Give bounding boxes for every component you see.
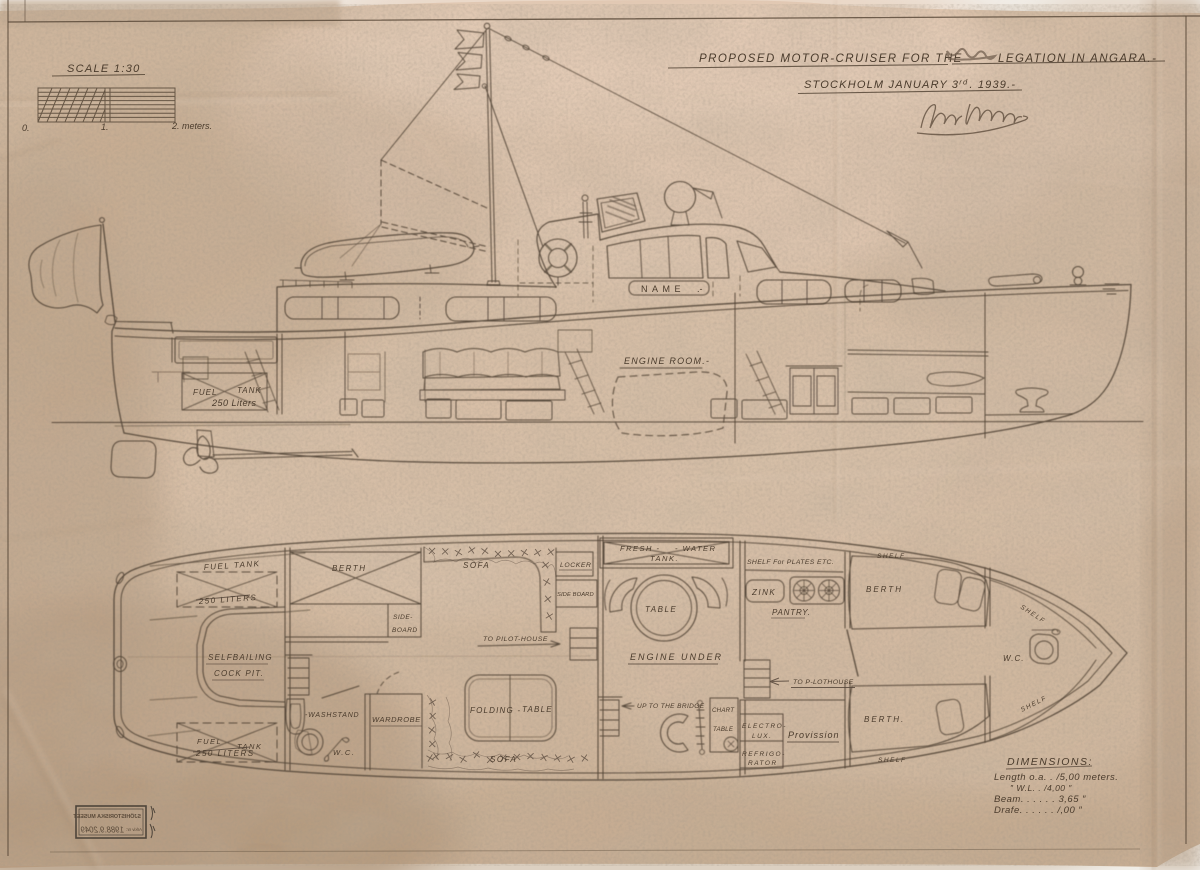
svg-text:TANK.: TANK.: [650, 554, 679, 563]
svg-text:REFRIGO-: REFRIGO-: [742, 751, 786, 758]
svg-text:FUEL: FUEL: [197, 737, 222, 746]
svg-text:BERTH: BERTH: [866, 585, 903, 594]
svg-text:W.C.: W.C.: [1003, 654, 1024, 663]
svg-text:CHART: CHART: [712, 707, 735, 714]
svg-text:TANK: TANK: [237, 386, 262, 395]
svg-text:FRESH -: FRESH -: [620, 544, 661, 553]
svg-text:1988.9.2049: 1988.9.2049: [80, 826, 124, 835]
svg-text:WARDROBE: WARDROBE: [372, 715, 421, 724]
svg-text:250 LITERS: 250 LITERS: [195, 749, 255, 758]
svg-text:SOFA: SOFA: [490, 755, 517, 764]
svg-text:SIDE-: SIDE-: [393, 614, 413, 621]
svg-text:250 Liters: 250 Liters: [211, 398, 257, 408]
svg-text:BERTH.: BERTH.: [864, 715, 905, 724]
svg-text:SJÖHISTORISKA MUSEET: SJÖHISTORISKA MUSEET: [73, 813, 141, 820]
svg-text:TO P-LOTHOUSE: TO P-LOTHOUSE: [793, 679, 854, 686]
svg-text:LUX.: LUX.: [752, 733, 772, 740]
svg-text:SHELF For PLATES ETC.: SHELF For PLATES ETC.: [747, 559, 834, 566]
svg-text:BOARD: BOARD: [392, 627, 418, 634]
svg-text:SCALE 1:30: SCALE 1:30: [67, 63, 141, 75]
svg-text:SHELF: SHELF: [877, 553, 905, 560]
svg-text:SIDE BOARD: SIDE BOARD: [557, 592, 594, 598]
svg-text:- WATER: - WATER: [675, 544, 716, 553]
svg-text:FOLDING -: FOLDING -: [470, 706, 521, 715]
svg-text:0.: 0.: [22, 123, 30, 133]
svg-text:TABLE: TABLE: [522, 705, 553, 714]
svg-text:LOCKER: LOCKER: [560, 562, 592, 569]
svg-text:PROPOSED MOTOR-CRUISER FOR: PROPOSED MOTOR-CRUISER FOR THE: [699, 53, 963, 65]
svg-text:ENGINE UNDER: ENGINE UNDER: [630, 652, 723, 662]
svg-text:NAME: NAME: [641, 284, 685, 294]
svg-text:W.C.: W.C.: [333, 748, 355, 757]
svg-text:ELECTRO-: ELECTRO-: [742, 723, 787, 730]
svg-text:ENGINE ROOM.-: ENGINE ROOM.-: [624, 356, 710, 366]
svg-text:SHELF: SHELF: [878, 757, 906, 764]
svg-text:Length o.a. . /5,00 meters.: Length o.a. . /5,00 meters.: [994, 772, 1118, 783]
svg-text:-WASHSTAND: -WASHSTAND: [305, 712, 359, 719]
svg-text:Arkiv nr:: Arkiv nr:: [126, 827, 142, 832]
svg-text:TABLE: TABLE: [713, 726, 734, 733]
svg-text:TABLE: TABLE: [645, 605, 677, 614]
svg-text:SOFA: SOFA: [463, 561, 490, 570]
svg-text:TO PILOT-HOUSE: TO PILOT-HOUSE: [483, 636, 548, 643]
svg-text:ZINK: ZINK: [751, 588, 776, 597]
svg-text:1.: 1.: [101, 122, 109, 132]
svg-text:Drafe. . . . . . /,00 ″: Drafe. . . . . . /,00 ″: [994, 805, 1082, 816]
svg-text:″ W.L. . /4,00 ″: ″ W.L. . /4,00 ″: [1010, 783, 1072, 793]
svg-text:BERTH: BERTH: [332, 564, 366, 573]
svg-text:RATOR: RATOR: [748, 760, 778, 767]
svg-text:STOCKHOLM JANUARY 3rd. 1939.-: STOCKHOLM JANUARY 3rd. 1939.-: [804, 78, 1016, 92]
svg-text:Provission: Provission: [788, 730, 840, 740]
svg-text:COCK PIT.: COCK PIT.: [214, 669, 264, 678]
svg-text:.-: .-: [697, 284, 703, 294]
svg-text:PANTRY.: PANTRY.: [772, 608, 811, 617]
svg-text:SELFBAILING: SELFBAILING: [208, 653, 273, 662]
svg-text:UP TO THE BRIDGE: UP TO THE BRIDGE: [637, 703, 705, 710]
svg-text:Beam. . . . . . 3,65 ″: Beam. . . . . . 3,65 ″: [994, 794, 1086, 805]
svg-text:2. meters.: 2. meters.: [171, 121, 212, 131]
svg-text:FUEL: FUEL: [193, 388, 217, 397]
